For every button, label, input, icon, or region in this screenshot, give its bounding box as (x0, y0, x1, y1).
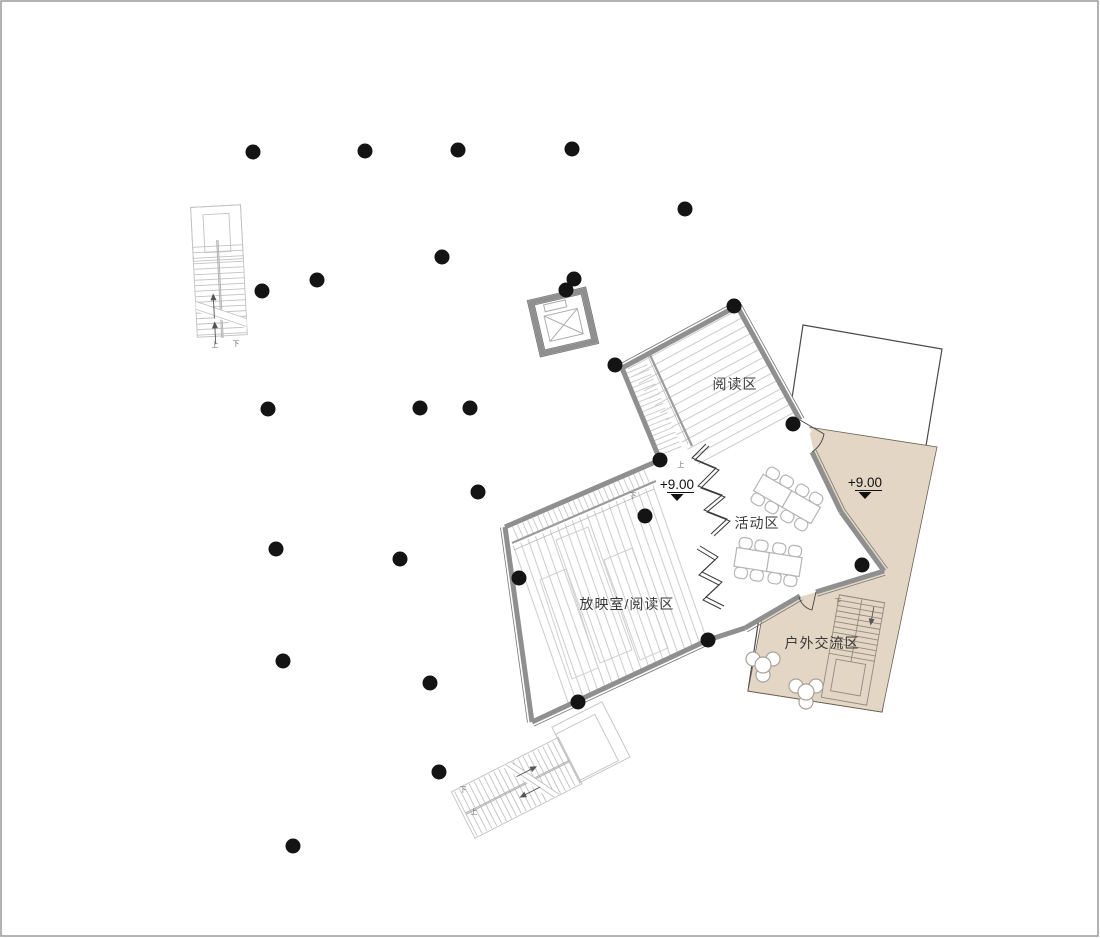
room-label-activity-area: 活动区 (735, 515, 780, 531)
floor-plan-canvas: 阅读区活动区放映室/阅读区户外交流区+9.00+9.00上下上下下上下 (0, 0, 1100, 938)
column-dot (471, 485, 486, 500)
column-dot (727, 299, 742, 314)
elevation-label-1: +9.00 (660, 477, 694, 492)
column-dot (463, 401, 478, 416)
elevator (527, 287, 599, 357)
column-dot (786, 417, 801, 432)
column-dot (269, 542, 284, 557)
column-dot (855, 558, 870, 573)
room-label-reading-area: 阅读区 (713, 376, 758, 392)
elevation-label-2: +9.00 (848, 475, 882, 490)
stair-direction-label: 下 (233, 340, 240, 348)
column-dot (261, 402, 276, 417)
room-label-outdoor-area: 户外交流区 (785, 635, 860, 651)
stair-top-left (191, 205, 248, 345)
stair-direction-label: 下 (630, 492, 637, 500)
column-dot (423, 676, 438, 691)
stair-bottom (446, 702, 631, 838)
elevation-triangle (671, 494, 684, 501)
column-dot (512, 571, 527, 586)
column-dot (559, 283, 574, 298)
stair-direction-label: 下 (835, 598, 842, 606)
column-dot (565, 142, 580, 157)
stair-direction-label: 下 (460, 786, 467, 794)
column-dot (310, 273, 325, 288)
stair-direction-label: 上 (678, 460, 685, 469)
column-dot (358, 144, 373, 159)
column-dot (653, 453, 668, 468)
column-dot (413, 401, 428, 416)
column-dot (435, 250, 450, 265)
column-dot (638, 509, 653, 524)
room-label-projection-area: 放映室/阅读区 (580, 596, 675, 612)
stair-direction-label: 上 (471, 807, 478, 816)
column-dot (393, 552, 408, 567)
stair-direction-label: 上 (212, 340, 219, 349)
column-dot (432, 765, 447, 780)
column-dot (451, 143, 466, 158)
column-dot (276, 654, 291, 669)
column-dot (608, 358, 623, 373)
column-dot (286, 839, 301, 854)
column-dot (571, 695, 586, 710)
column-dot (246, 145, 261, 160)
column-dot (255, 284, 270, 299)
column-dot (678, 202, 693, 217)
column-dot (701, 633, 716, 648)
